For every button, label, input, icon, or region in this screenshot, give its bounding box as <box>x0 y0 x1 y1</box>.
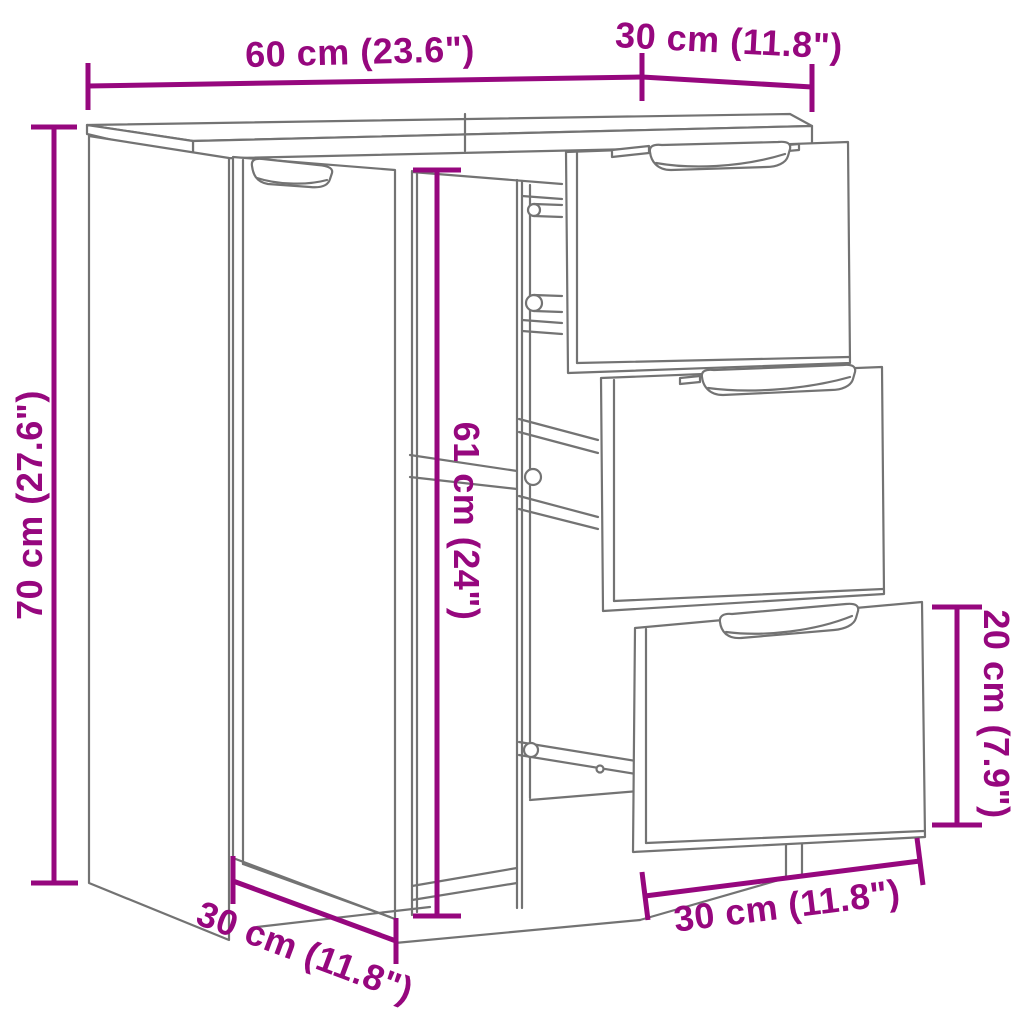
left-side-panel <box>89 136 229 940</box>
dimension-label-drawer-height: 20 cm (7.9") <box>978 609 1014 818</box>
cabinet-line-drawing <box>0 0 1024 1024</box>
drawer-2 <box>601 365 884 611</box>
drawer-2-handle-icon <box>702 365 855 395</box>
drawer-1 <box>566 142 850 373</box>
dimension-label-interior-height: 61 cm (24") <box>448 422 484 621</box>
drawer-3 <box>633 602 925 852</box>
drawer-1-handle-icon <box>650 142 790 170</box>
dimension-label-top-width: 60 cm (23.6") <box>245 31 476 73</box>
dimension-diagram: 60 cm (23.6") 30 cm (11.8") 70 cm (27.6"… <box>0 0 1024 1024</box>
door-panel <box>233 157 395 943</box>
dimension-label-height: 70 cm (27.6") <box>12 390 48 620</box>
